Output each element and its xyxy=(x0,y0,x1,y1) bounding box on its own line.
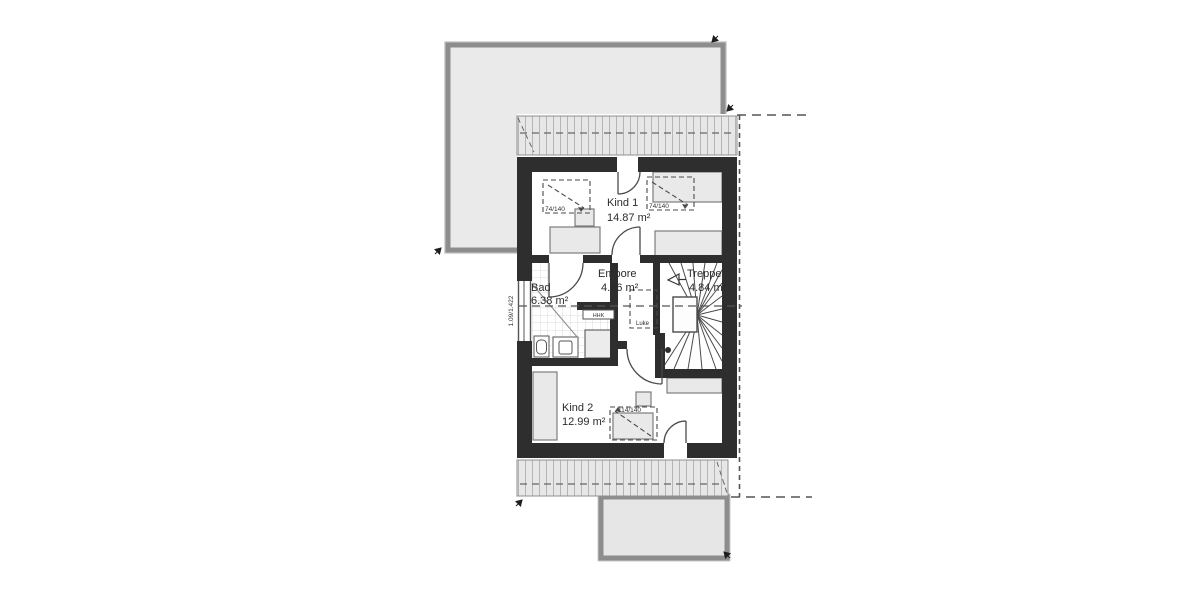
wall-kind1-c xyxy=(640,255,722,263)
attic-hatch-label: Luke xyxy=(636,321,650,327)
wall-left-lower xyxy=(517,341,532,458)
roof-window-2-size: 74/140 xyxy=(649,203,669,210)
room-area-treppe: 4.84 m² xyxy=(689,282,727,294)
room-area-bad: 6.38 m² xyxy=(531,295,569,307)
kind2-wardrobe xyxy=(533,372,557,440)
kind1-sideboard xyxy=(655,231,722,256)
wall-stairs-west-low xyxy=(655,333,665,373)
wall-bottom-right xyxy=(687,443,737,458)
roof-overhang-bottom xyxy=(517,460,728,496)
room-label-treppe: Treppe xyxy=(687,268,721,280)
roof-area-lower xyxy=(598,494,730,561)
kind2-bed xyxy=(667,378,722,393)
door-pivot-dot xyxy=(665,347,671,353)
room-area-empore: 4.66 m² xyxy=(601,282,639,294)
shower xyxy=(585,330,612,358)
kind1-chair xyxy=(575,209,594,226)
stairs-landing xyxy=(673,297,697,332)
wall-kind1-b xyxy=(583,255,612,263)
wall-dot xyxy=(715,370,721,376)
window-size-label: 1.09/1.422 xyxy=(508,295,515,326)
roof-window-1-size: 74/140 xyxy=(545,206,565,213)
kind1-desk xyxy=(550,227,600,253)
room-label-bad: Bad xyxy=(531,282,551,294)
roof-overhang-top xyxy=(517,116,737,155)
room-label-kind2: Kind 2 xyxy=(562,402,593,414)
washbasin-bowl-icon xyxy=(559,341,572,354)
room-area-kind2: 12.99 m² xyxy=(562,416,606,428)
room-label-kind1: Kind 1 xyxy=(607,197,638,209)
floorplan-drawing: HHK 74/140 74/140 114/140 Luke xyxy=(0,0,1200,600)
room-label-empore: Empore xyxy=(598,268,637,280)
room-area-kind1: 14.87 m² xyxy=(607,212,651,224)
wall-stairs-south xyxy=(655,369,722,378)
bath-fixtures xyxy=(534,336,578,357)
toilet-bowl-icon xyxy=(537,340,547,354)
radiator: HHK xyxy=(583,310,614,319)
wall-bottom-left xyxy=(517,443,664,458)
kind2-chair xyxy=(636,392,651,406)
radiator-label: HHK xyxy=(593,313,605,319)
roof-window-3-size: 114/140 xyxy=(618,407,641,414)
wall-right xyxy=(722,157,737,458)
wall-left-upper xyxy=(517,157,532,281)
floorplan-canvas: HHK 74/140 74/140 114/140 Luke xyxy=(0,0,1200,600)
wall-empore-south xyxy=(610,341,627,349)
wall-kind1-a xyxy=(532,255,549,263)
wall-bad-south xyxy=(532,358,618,366)
kind2-desk xyxy=(613,413,653,439)
